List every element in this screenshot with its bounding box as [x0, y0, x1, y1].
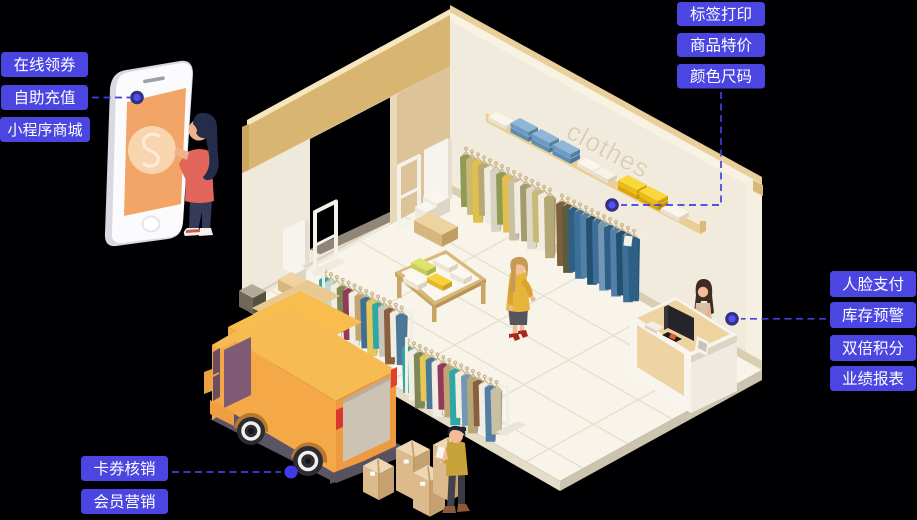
svg-text:在线领券: 在线领券: [13, 56, 76, 74]
svg-text:人脸支付: 人脸支付: [842, 275, 904, 293]
svg-text:标签打印: 标签打印: [690, 5, 752, 23]
svg-text:卡券核销: 卡券核销: [93, 460, 155, 478]
svg-text:颜色尺码: 颜色尺码: [690, 68, 752, 86]
svg-text:自助充值: 自助充值: [13, 89, 75, 107]
svg-text:商品特价: 商品特价: [690, 36, 753, 54]
svg-text:小程序商城: 小程序商城: [7, 122, 82, 139]
svg-text:会员营销: 会员营销: [93, 493, 155, 511]
svg-text:库存预警: 库存预警: [842, 306, 904, 324]
svg-text:业绩报表: 业绩报表: [842, 370, 904, 388]
svg-text:双倍积分: 双倍积分: [842, 339, 904, 357]
